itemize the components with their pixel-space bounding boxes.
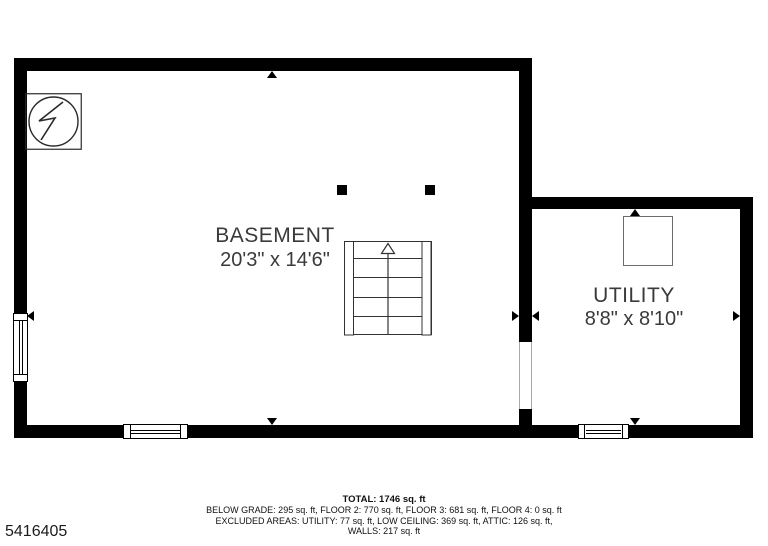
window-left-wall (13, 313, 28, 382)
dimension-arrow-right-basement (512, 311, 519, 321)
wall-basement-top (14, 58, 532, 71)
area-summary: TOTAL: 1746 sq. ft BELOW GRADE: 295 sq. … (0, 495, 768, 537)
dimension-arrow-down-basement (267, 418, 277, 425)
wall-utility-top (532, 197, 753, 209)
room-dimensions-basement: 20'3" x 14'6" (165, 249, 385, 272)
dimension-arrow-up-basement (267, 71, 277, 78)
total-area-text: TOTAL: 1746 sq. ft (0, 495, 768, 505)
window-bottom-left (123, 424, 188, 439)
dimension-arrow-down-utility (630, 418, 640, 425)
room-dimensions-utility: 8'8" x 8'10" (524, 308, 744, 331)
column-post (337, 185, 347, 195)
area-breakdown-line: EXCLUDED AREAS: UTILITY: 77 sq. ft, LOW … (0, 516, 768, 526)
dimension-arrow-left-basement (27, 311, 34, 321)
plan-id: 5416405 (5, 523, 67, 541)
electrical-panel-icon (25, 93, 82, 150)
area-breakdown-line: BELOW GRADE: 295 sq. ft, FLOOR 2: 770 sq… (0, 505, 768, 515)
area-breakdown-line: WALLS: 217 sq. ft (0, 526, 768, 536)
room-label-utility: UTILITY (524, 284, 744, 308)
water-heater (623, 216, 673, 266)
dimension-arrow-up-utility (630, 209, 640, 216)
room-label-basement: BASEMENT (165, 224, 385, 248)
column-post (425, 185, 435, 195)
door-opening (519, 342, 532, 409)
window-bottom-utility (578, 424, 629, 439)
floor-plan: BASEMENT 20'3" x 14'6" UTILITY 8'8" x 8'… (0, 0, 768, 546)
